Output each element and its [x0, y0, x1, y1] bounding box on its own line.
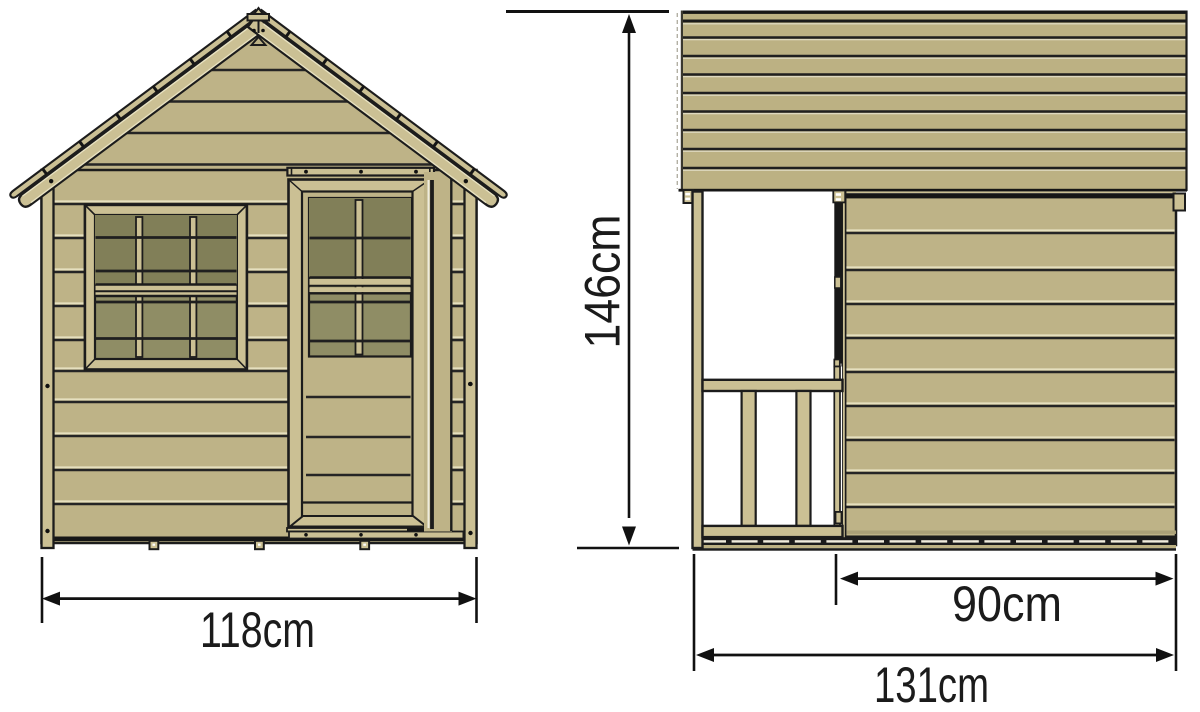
svg-text:118cm: 118cm: [200, 601, 315, 658]
svg-text:131cm: 131cm: [874, 656, 989, 712]
svg-text:146cm: 146cm: [574, 215, 631, 349]
svg-text:90cm: 90cm: [952, 575, 1062, 632]
